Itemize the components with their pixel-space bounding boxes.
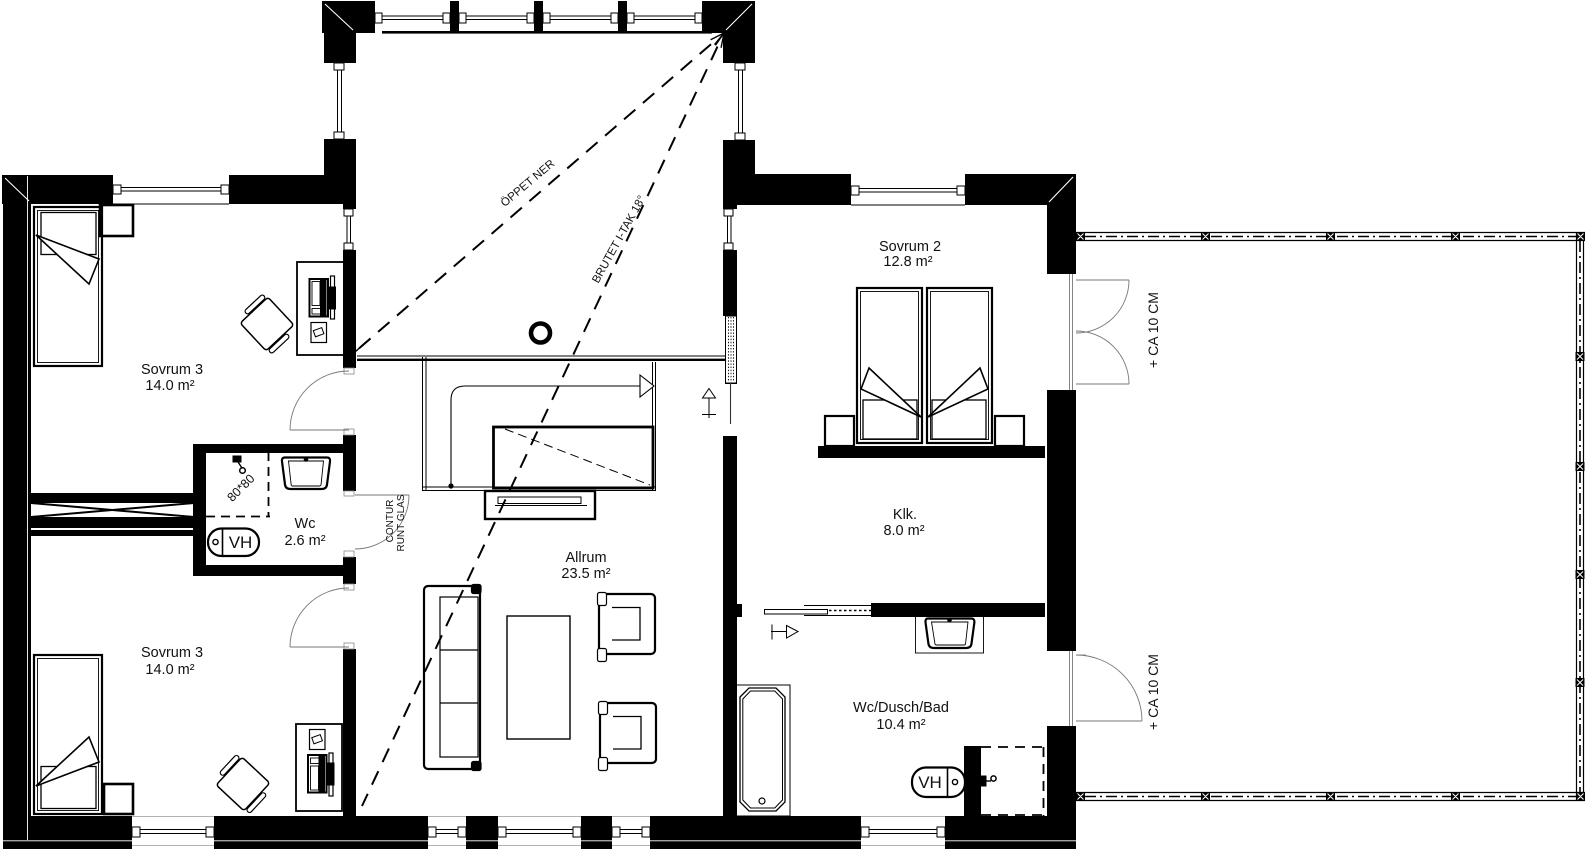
svg-text:12.8 m²: 12.8 m² [883, 254, 932, 270]
svg-text:Wc/Dusch/Bad: Wc/Dusch/Bad [853, 700, 949, 716]
svg-text:Allrum: Allrum [565, 550, 606, 566]
svg-text:VH: VH [918, 773, 942, 792]
svg-text:Wc: Wc [295, 516, 316, 532]
svg-text:Klk.: Klk. [893, 507, 917, 523]
svg-text:2.6 m²: 2.6 m² [284, 533, 325, 549]
svg-text:8.0 m²: 8.0 m² [883, 523, 924, 539]
svg-text:10.4 m²: 10.4 m² [876, 717, 925, 733]
svg-text:+ CA 10 CM: + CA 10 CM [1145, 654, 1161, 730]
svg-text:14.0 m²: 14.0 m² [145, 378, 194, 394]
svg-text:Sovrum 3: Sovrum 3 [141, 362, 203, 378]
svg-text:RUNT GLAS: RUNT GLAS [396, 494, 407, 551]
svg-text:VH: VH [229, 533, 253, 552]
svg-text:23.5 m²: 23.5 m² [561, 566, 610, 582]
svg-text:Sovrum 3: Sovrum 3 [141, 645, 203, 661]
svg-text:+ CA 10 CM: + CA 10 CM [1145, 292, 1161, 368]
svg-text:CONTUR: CONTUR [385, 500, 396, 543]
svg-text:14.0 m²: 14.0 m² [145, 662, 194, 678]
svg-text:Sovrum 2: Sovrum 2 [879, 239, 941, 255]
